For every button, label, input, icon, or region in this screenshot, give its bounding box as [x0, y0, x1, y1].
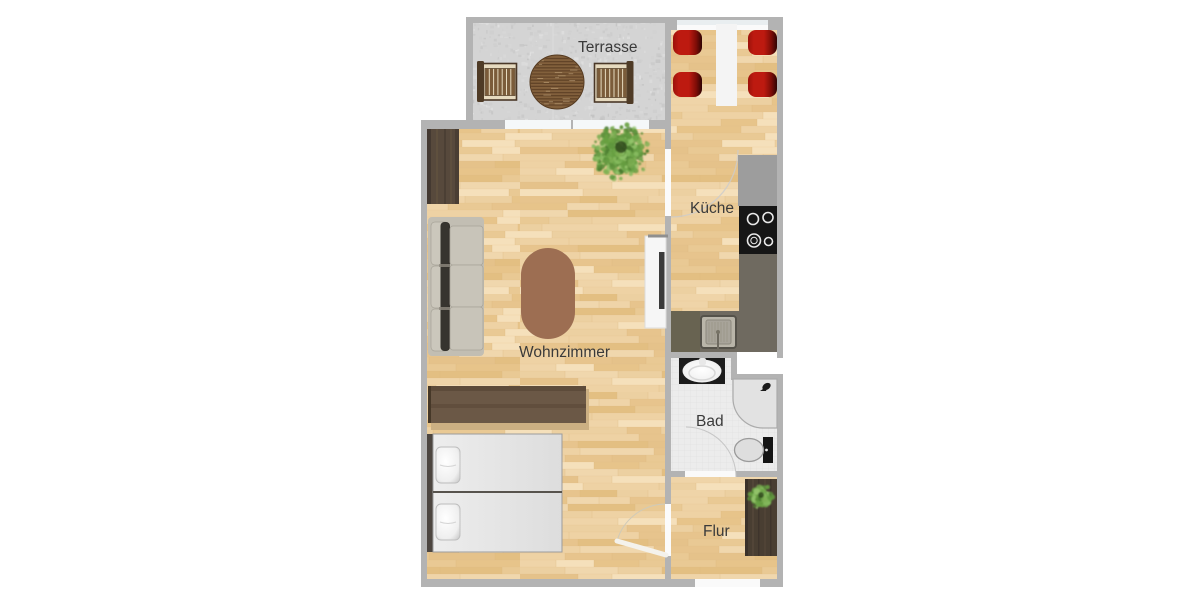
svg-text:Wohnzimmer: Wohnzimmer [519, 344, 610, 361]
svg-text:Bad: Bad [696, 413, 724, 430]
svg-text:Küche: Küche [690, 200, 734, 217]
svg-text:Flur: Flur [703, 523, 730, 540]
svg-text:Terrasse: Terrasse [578, 39, 637, 56]
